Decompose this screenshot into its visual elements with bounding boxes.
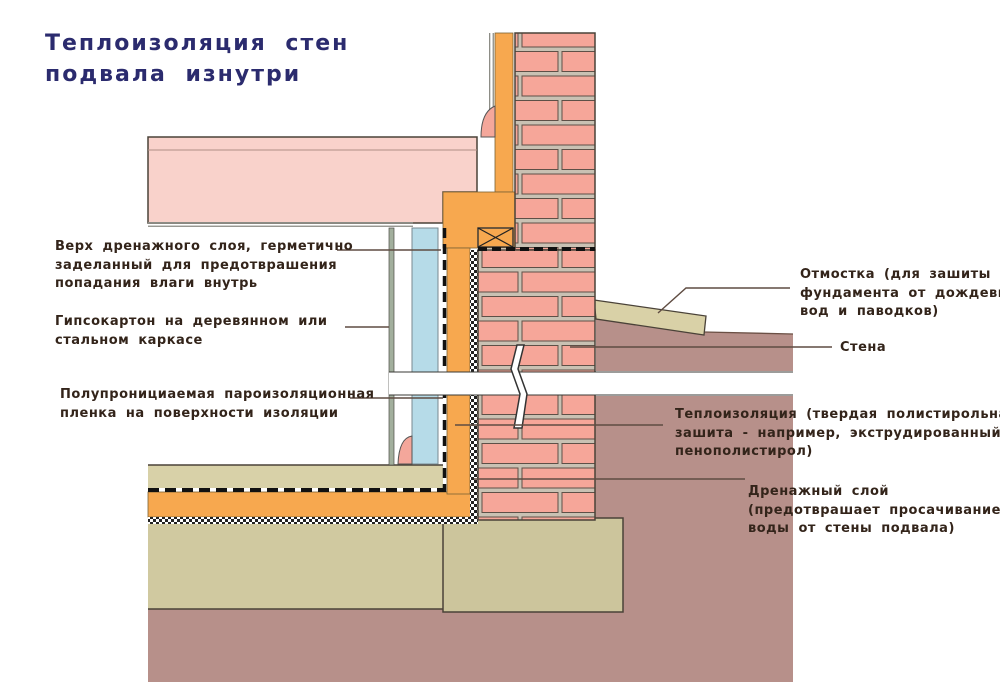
- gypsum-board-strip: [389, 228, 394, 465]
- label-line: Верх дренажного слоя, герметично: [55, 238, 353, 257]
- brick-wall-upper: [515, 33, 595, 250]
- leader-blind-area: [658, 288, 790, 313]
- floor-insulation: [148, 492, 478, 517]
- floor-screed: [148, 465, 443, 488]
- label-line: вод и паводков): [800, 303, 1000, 322]
- soil-bottom: [148, 609, 793, 682]
- title-line: Теплоизоляция стен: [45, 28, 349, 59]
- label-line: пленка на поверхности изоляции: [60, 405, 374, 424]
- sub-base-slab: [148, 523, 443, 609]
- wall-insulation-upper: [495, 33, 513, 192]
- label-gypsum-board: Гипсокартон на деревянном или стальном к…: [55, 313, 327, 350]
- label-line: (предотврашает просачивание: [748, 502, 1000, 521]
- page-title: Теплоизоляция стен подвала изнутри: [45, 28, 349, 90]
- label-line: попадания влаги внутрь: [55, 275, 353, 294]
- label-drainage-layer: Дренажный слой (предотврашает просачиван…: [748, 483, 1000, 539]
- sealant-cove-bottom: [398, 436, 412, 464]
- label-line: Дренажный слой: [748, 483, 1000, 502]
- title-line: подвала изнутри: [45, 59, 349, 90]
- label-line: фундамента от дождевых: [800, 285, 1000, 304]
- ceiling-finish-line: [148, 226, 413, 227]
- label-line: Теплоизоляция (твердая полистирольная: [675, 406, 1000, 425]
- ceiling-finish-line: [148, 222, 413, 223]
- label-line: зашита - например, экструдированный: [675, 425, 1000, 444]
- label-vapor-film: Полупронициаемая пароизоляционная пленка…: [60, 386, 374, 423]
- label-line: Стена: [840, 339, 886, 358]
- label-line: Отмостка (для зашиты: [800, 266, 1000, 285]
- wall-insulation-basement: [447, 248, 470, 494]
- footing: [443, 518, 623, 612]
- floor-drainage-layer: [148, 517, 478, 524]
- sealant-cove-top: [481, 106, 495, 137]
- break-band: [389, 372, 793, 395]
- basement-insulation-diagram: Теплоизоляция стен подвала изнутри Верх …: [0, 0, 1000, 695]
- label-wall: Стена: [840, 339, 886, 358]
- label-drainage-top-seal: Верх дренажного слоя, герметично заделан…: [55, 238, 353, 294]
- label-line: воды от стены подвала): [748, 520, 1000, 539]
- label-line: стальном каркасе: [55, 332, 327, 351]
- label-line: пенополистирол): [675, 443, 1000, 462]
- label-line: заделанный для предотврашения: [55, 257, 353, 276]
- label-blind-area: Отмостка (для зашиты фундамента от дожде…: [800, 266, 1000, 322]
- stud-frame-zone: [412, 228, 438, 464]
- label-line: Полупронициаемая пароизоляционная: [60, 386, 374, 405]
- label-line: Гипсокартон на деревянном или: [55, 313, 327, 332]
- label-thermal-insulation: Теплоизоляция (твердая полистирольная за…: [675, 406, 1000, 462]
